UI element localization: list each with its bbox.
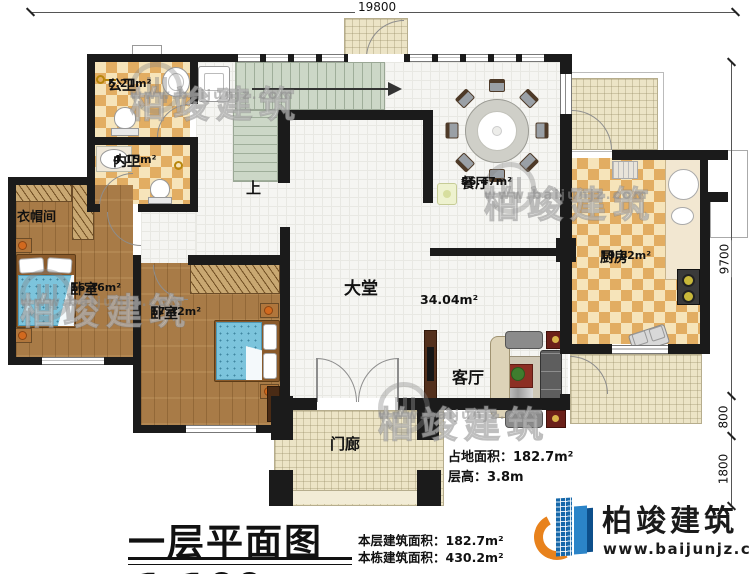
toilet-tank-icon (111, 128, 139, 136)
wall (8, 177, 16, 365)
tv-icon (427, 347, 434, 381)
wall (8, 357, 42, 365)
towel-ring-icon (96, 75, 105, 84)
wall (188, 255, 280, 265)
lamp-icon (18, 241, 27, 250)
stairs-upper-run (235, 62, 385, 110)
building-area-lines: 本层建筑面积：182.7m² 本栋建筑面积：430.2m² (358, 532, 504, 566)
brand-logo-tower2 (574, 506, 587, 555)
dining-chair (489, 79, 505, 92)
window (438, 54, 460, 62)
wall (560, 344, 612, 354)
entry-door-leaf (316, 358, 318, 402)
window (522, 54, 544, 62)
sofa-top (505, 331, 543, 349)
title-underline-thick (128, 557, 352, 560)
window (294, 54, 316, 62)
wall (87, 54, 198, 62)
porch-pillar (269, 470, 293, 506)
sofa-bottom (505, 410, 543, 428)
stair-direction-line (252, 88, 390, 90)
window (612, 345, 668, 354)
wall (133, 255, 141, 433)
porch-pillar (417, 410, 439, 440)
toilet-tank-icon (148, 197, 172, 204)
stairs-lower-run (233, 110, 278, 182)
floor-plan-sheet: 柏竣建筑 www.baijunjz.com 柏竣建筑 www.baijunjz.… (0, 0, 750, 574)
pillow-icon (263, 324, 277, 350)
stair-direction-arrowhead (388, 82, 402, 96)
window (560, 74, 572, 114)
window (186, 425, 256, 433)
wall (398, 398, 562, 410)
entry-door-leaf (397, 358, 399, 402)
side-table-dot (552, 415, 559, 422)
wall (278, 110, 290, 183)
brand-site: www.baijunjz.com (603, 540, 750, 558)
wall (278, 110, 433, 120)
total-area-line: 本栋建筑面积：430.2m² (358, 549, 504, 566)
wall (190, 137, 198, 212)
pillow-icon (47, 257, 73, 274)
kitchen-sink-icon (668, 169, 699, 200)
land-area-note: 占地面积：182.7m² (448, 446, 573, 465)
window (42, 357, 104, 365)
towel-ring-icon (174, 161, 183, 170)
dimension-top-value: 19800 (355, 0, 399, 14)
wardrobe (14, 184, 72, 202)
wall (133, 425, 186, 433)
floor-height-note: 层高：3.8m (448, 466, 524, 485)
dimension-right-mid: 800 (716, 403, 730, 432)
pillow-icon (19, 257, 45, 274)
title-underline-thin (128, 564, 352, 565)
brand-logo-tower (556, 497, 572, 556)
brand-name: 柏竣建筑 (602, 496, 738, 540)
brand-logo-tower-edge (587, 508, 593, 552)
wall (95, 137, 190, 145)
burner-icon (682, 274, 695, 287)
wall (280, 227, 290, 410)
brand-logo: 柏竣建筑 www.baijunjz.com (530, 492, 742, 568)
sink-bowl-icon (168, 73, 184, 91)
toilet-icon (114, 107, 136, 129)
wall (87, 204, 100, 212)
dining-table-hub (492, 126, 502, 136)
drawing-scale: 1:100 (136, 566, 263, 574)
wall (8, 177, 88, 185)
burner-icon (682, 290, 695, 303)
kitchen-bay-inner (708, 160, 728, 192)
wall (612, 150, 704, 160)
window (410, 54, 432, 62)
pillow-icon (263, 353, 277, 379)
dining-chair (446, 123, 459, 139)
floor-area-line: 本层建筑面积：182.7m² (358, 532, 504, 549)
lamp-icon (18, 331, 27, 340)
toilet-icon (150, 179, 170, 199)
dimension-right-main: 9700 (717, 241, 731, 278)
window (238, 54, 260, 62)
terrace-door-opening (348, 54, 404, 62)
lamp-icon (264, 306, 273, 315)
dimension-line-right (731, 62, 732, 506)
porch-step (288, 490, 430, 504)
window (266, 54, 288, 62)
porch-pillar (271, 396, 293, 440)
duvet-fold (246, 322, 262, 380)
window (466, 54, 488, 62)
wall (700, 202, 710, 354)
counter-rack (612, 161, 638, 179)
window (494, 54, 516, 62)
wall (104, 357, 134, 365)
wall (430, 248, 562, 256)
wall (668, 344, 710, 354)
dimension-right-low: 1800 (716, 451, 730, 488)
plant-icon (443, 190, 451, 198)
kitchen-sink-icon (671, 207, 694, 225)
stair-cabinet-inner (204, 73, 224, 91)
dining-chair (536, 123, 549, 139)
wall (87, 54, 95, 212)
window (322, 54, 344, 62)
plant-icon (512, 368, 524, 380)
porch-pillar (417, 470, 441, 506)
side-table-dot (552, 336, 559, 343)
wall (138, 204, 196, 212)
wall (423, 110, 433, 203)
wardrobe (190, 264, 280, 294)
